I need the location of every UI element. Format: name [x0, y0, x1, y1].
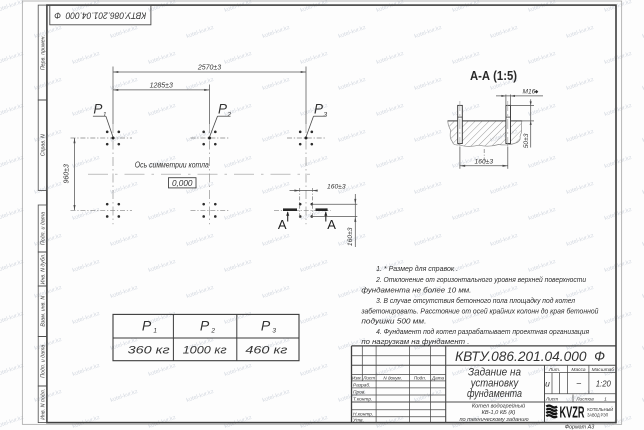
svg-text:Утв.: Утв.	[353, 417, 364, 423]
svg-text:0,000: 0,000	[172, 179, 193, 188]
svg-text:1: 1	[153, 327, 157, 334]
svg-text:P: P	[142, 317, 152, 333]
svg-text:фундамента: фундамента	[467, 388, 522, 400]
svg-text:N докум.: N докум.	[383, 376, 402, 381]
svg-text:Лит.: Лит.	[548, 367, 560, 373]
svg-text:подушки 500 мм.: подушки 500 мм.	[361, 317, 426, 326]
svg-text:КВТУ.086.201.04.000 Ф: КВТУ.086.201.04.000 Ф	[54, 11, 146, 21]
svg-text:Разраб.: Разраб.	[353, 382, 370, 388]
svg-text:P: P	[93, 102, 102, 117]
svg-text:KVZR: KVZR	[560, 404, 585, 421]
svg-text:А-А (1:5): А-А (1:5)	[470, 69, 517, 83]
svg-text:Подп. и дата: Подп. и дата	[41, 345, 47, 378]
svg-text:Лист: Лист	[545, 397, 558, 403]
svg-text:1. * Размер для справок .: 1. * Размер для справок .	[376, 264, 458, 273]
svg-text:1: 1	[604, 397, 607, 403]
svg-text:Котел водогрейный: Котел водогрейный	[472, 402, 525, 409]
svg-text:М16: М16	[523, 88, 536, 95]
svg-text:P: P	[200, 317, 210, 333]
svg-text:160±3: 160±3	[327, 184, 346, 191]
svg-text:1:20: 1:20	[596, 379, 612, 388]
svg-text:Взам. инв. N: Взам. инв. N	[41, 296, 47, 327]
svg-text:50±3: 50±3	[523, 133, 530, 148]
svg-text:–: –	[576, 379, 582, 388]
svg-text:по техническому заданию: по техническому заданию	[459, 417, 529, 423]
svg-text:КВТУ.086.201.04.000 Ф: КВТУ.086.201.04.000 Ф	[455, 348, 605, 364]
svg-text:А: А	[327, 217, 336, 232]
svg-text:Подп. и дата: Подп. и дата	[41, 212, 47, 245]
svg-text:Масштаб: Масштаб	[592, 367, 615, 373]
svg-text:Формат А3: Формат А3	[565, 424, 595, 430]
svg-text:2570±3: 2570±3	[197, 65, 221, 72]
svg-text:Изм.: Изм.	[352, 376, 362, 381]
svg-text:3: 3	[272, 327, 276, 334]
svg-text:Дата: Дата	[431, 376, 445, 381]
svg-text:2: 2	[227, 112, 232, 119]
svg-text:Инв. N дубл.: Инв. N дубл.	[41, 254, 47, 285]
svg-text:по нагрузкам на фундамент .: по нагрузкам на фундамент .	[361, 337, 469, 346]
svg-text:460 кг: 460 кг	[245, 344, 288, 356]
svg-text:Подп.: Подп.	[414, 376, 426, 381]
svg-text:Лист: Лист	[362, 376, 375, 381]
svg-text:забетонировать. Расстояние от: забетонировать. Расстояние от осей крайн…	[361, 306, 600, 315]
svg-text:P: P	[314, 102, 323, 117]
svg-text:ЗАВОД РЭП: ЗАВОД РЭП	[587, 412, 608, 417]
svg-text:1000 кг: 1000 кг	[183, 344, 228, 356]
svg-text:P: P	[218, 102, 227, 117]
svg-text:2: 2	[210, 327, 215, 334]
svg-text:160±3: 160±3	[347, 227, 354, 246]
svg-text:Инв. N подл.: Инв. N подл.	[41, 389, 47, 420]
svg-text:КОТЕЛЬНЫЙ: КОТЕЛЬНЫЙ	[587, 405, 613, 412]
svg-text:Листов: Листов	[575, 397, 594, 403]
svg-text:Ось симметрии котла: Ось симметрии котла	[135, 160, 209, 169]
svg-text:Перв. примен.: Перв. примен.	[41, 35, 47, 70]
svg-text:и: и	[545, 378, 550, 388]
svg-text:4. Фундамент под котел разраба: 4. Фундамент под котел разрабатывает про…	[376, 327, 589, 336]
svg-text:фундамента не более 10 мм.: фундамента не более 10 мм.	[361, 285, 471, 294]
svg-text:Т.контр.: Т.контр.	[353, 397, 372, 403]
svg-text:Пров.: Пров.	[353, 389, 366, 395]
svg-text:Справ. N: Справ. N	[41, 134, 47, 156]
svg-text:3: 3	[324, 112, 328, 119]
svg-text:360 кг: 360 кг	[128, 344, 171, 356]
svg-text:2. Отклонение от горизонтально: 2. Отклонение от горизонтального уровня …	[375, 275, 587, 284]
svg-text:Н.контр.: Н.контр.	[353, 411, 373, 417]
svg-text:1285±3: 1285±3	[150, 82, 173, 89]
svg-text:А: А	[278, 217, 287, 232]
svg-text:P: P	[261, 317, 271, 333]
svg-text:Масса: Масса	[571, 367, 586, 373]
svg-text:960±3: 960±3	[64, 164, 71, 184]
svg-text:КВ-1,0 КБ (К): КВ-1,0 КБ (К)	[482, 410, 516, 416]
svg-text:3. В случае отсутствия бетонно: 3. В случае отсутствия бетонного пола пл…	[376, 296, 576, 305]
